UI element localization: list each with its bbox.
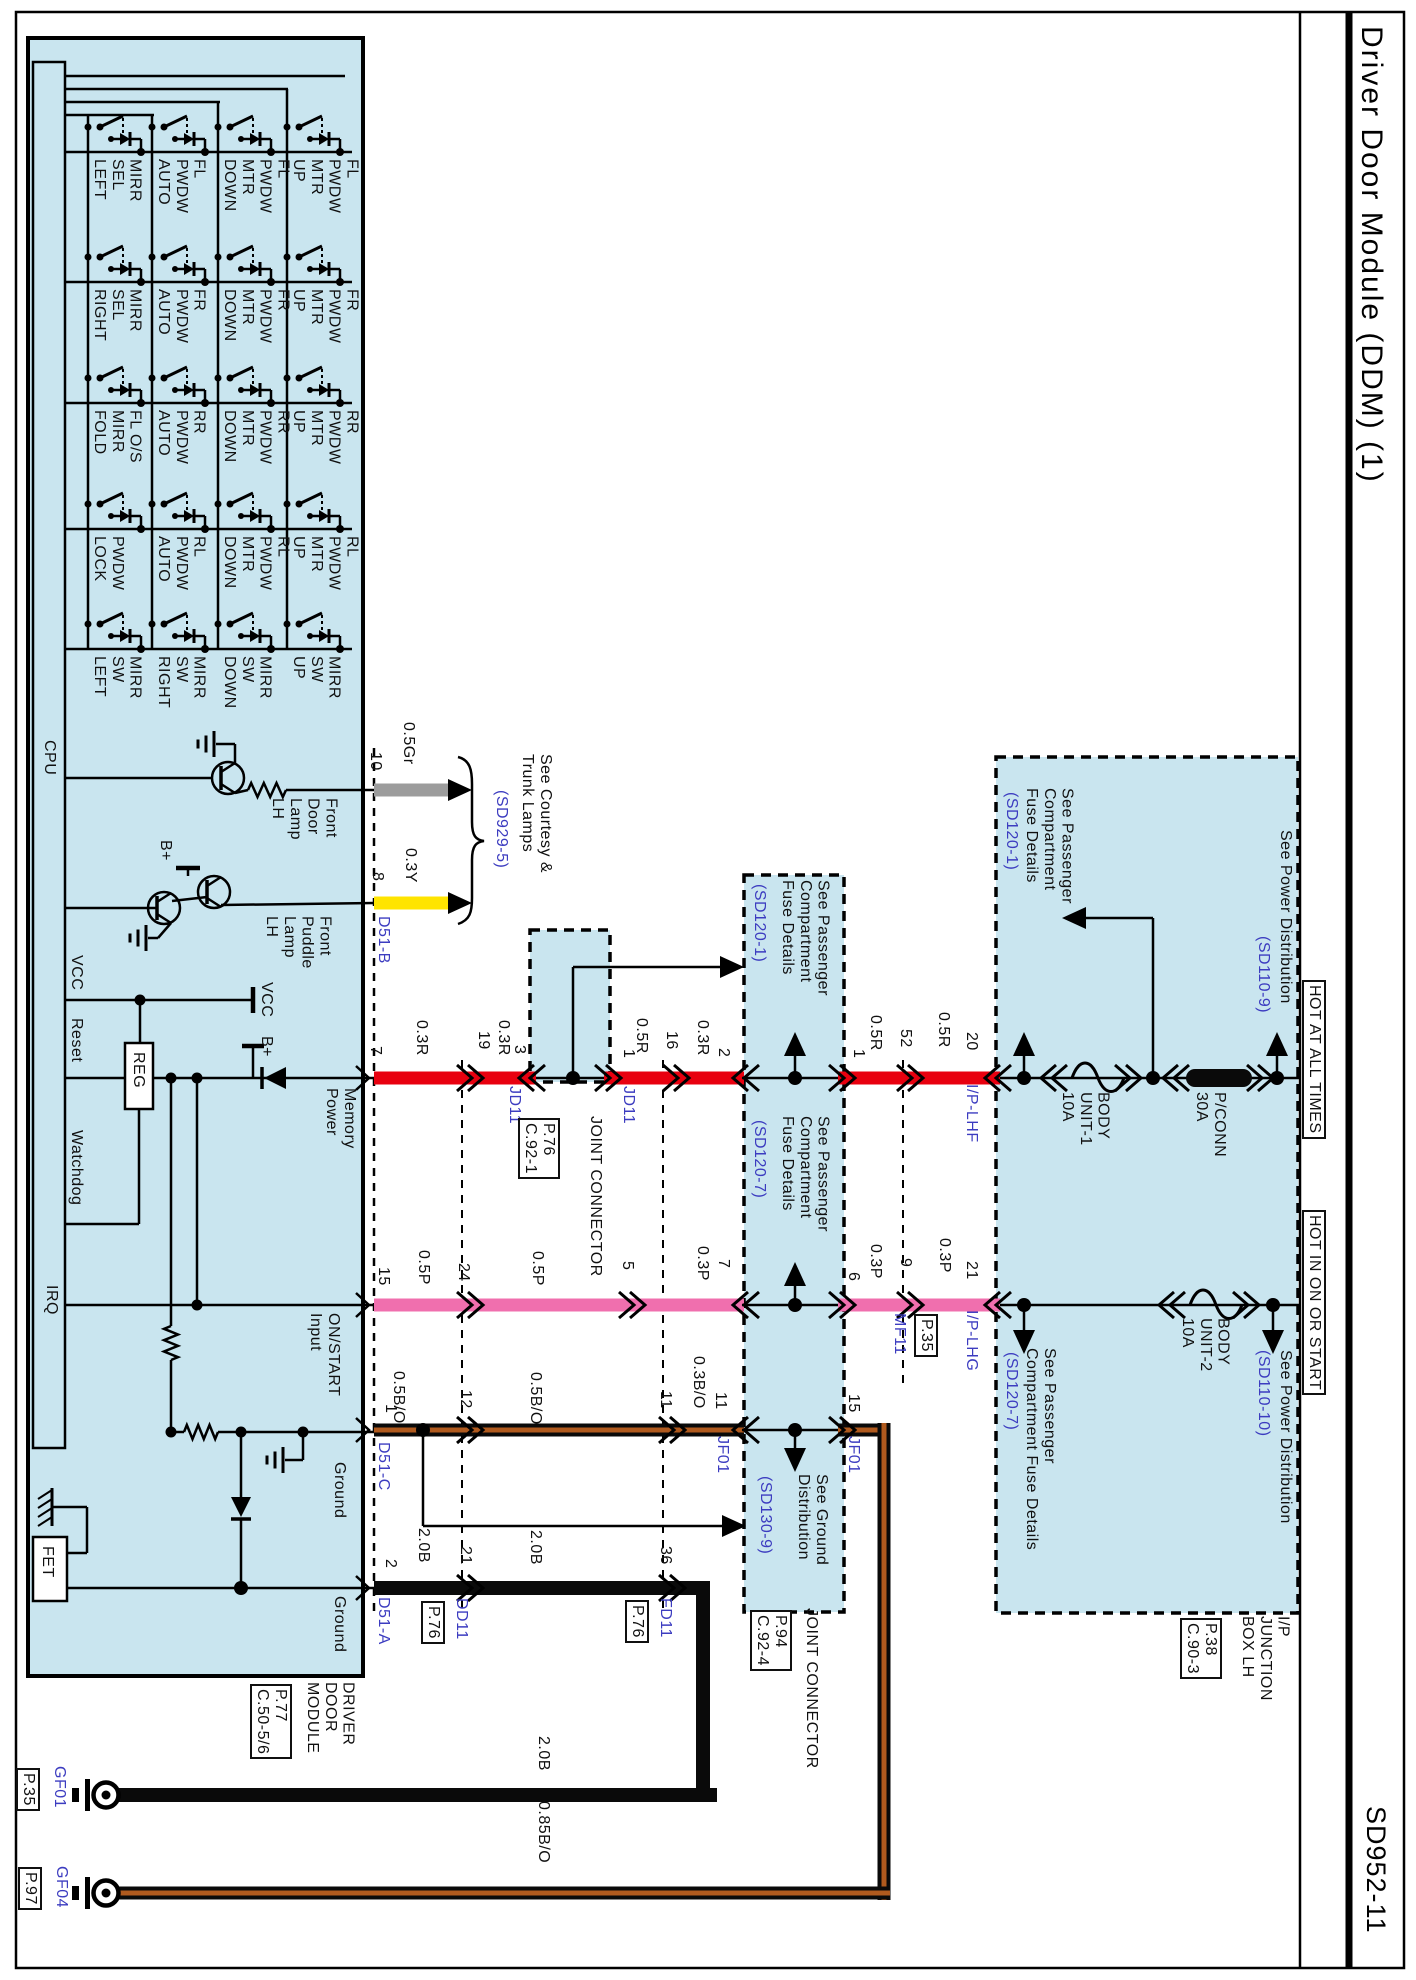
pin-19: 19 <box>474 1031 492 1050</box>
fuse-pconn: P/CONN 30A <box>1192 1092 1228 1157</box>
conn-jd11-right: JD11 <box>619 1086 637 1124</box>
conn-mf11: MF11 <box>890 1313 908 1355</box>
module-ref: P.77 C.50-5/6 <box>250 1684 292 1759</box>
vcc-symbol-label: VCC <box>257 982 275 1017</box>
ip-see-fuse-7: See Passenger Compartment Fuse Details <box>1022 1348 1058 1550</box>
jf01-see-fuse-7-ref: (SD120-7) <box>750 1120 768 1198</box>
jd11-joint-connector: JOINT CONNECTOR <box>586 1116 604 1277</box>
pin-7: 7 <box>366 1046 384 1055</box>
wire-0p3r-3: 0.3R <box>693 1020 711 1056</box>
pin-24: 24 <box>454 1263 472 1282</box>
switch-label-r5c3: MIRR SW DOWN <box>220 656 274 709</box>
gf04-ref: P.97 <box>18 1867 42 1910</box>
conn-d51-b: D51-B <box>374 916 392 964</box>
pin-memory-power: Memory Power <box>322 1088 358 1149</box>
pin-2-jf01: 2 <box>714 1048 732 1057</box>
jf01-see-fuse-1: See Passenger Compartment Fuse Details <box>778 880 832 996</box>
pin-21-dd11: 21 <box>456 1546 474 1565</box>
ip-see-fuse-1-ref: (SD120-1) <box>1002 792 1020 870</box>
fuse-body-unit-2: BODY UNIT-2 10A <box>1178 1318 1232 1372</box>
wire-0p5r-1: 0.5R <box>632 1018 650 1054</box>
switch-label-r4c1: PWDW LOCK <box>90 536 126 590</box>
jf01-see-fuse-7: See Passenger Compartment Fuse Details <box>778 1116 832 1232</box>
wire-0p3y: 0.3Y <box>401 848 419 883</box>
cpu-label: CPU <box>40 740 58 775</box>
switch-label-r2c3: FR PWDW MTR DOWN <box>220 289 292 343</box>
pin-15-jf01: 15 <box>844 1394 862 1413</box>
reg-label: REG <box>129 1052 147 1088</box>
pin-20: 20 <box>962 1032 980 1051</box>
mf11-ref: P.35 <box>914 1314 938 1357</box>
hot-at-all-times: HOT AT ALL TIMES <box>1302 980 1326 1139</box>
conn-ip-lhg: I/P-LHG <box>962 1310 980 1371</box>
schematic-page: CPUVCCResetWatchdogIRQREGFETVCCB+B+Front… <box>0 0 1416 1980</box>
wire-0p5bo-1: 0.5B/O <box>389 1371 407 1424</box>
switch-label-r2c1: MIRR SEL RIGHT <box>90 289 144 341</box>
dd11-ref: P.76 <box>421 1601 445 1644</box>
sig-vcc: VCC <box>67 955 85 990</box>
switch-label-r4c3: RL PWDW MTR DOWN <box>220 536 292 590</box>
switch-label-r1c4: FL PWDW MTR UP <box>289 159 361 213</box>
pin-5: 5 <box>618 1261 636 1270</box>
wire-0p3p-2: 0.3P <box>866 1244 884 1279</box>
sig-watchdog: Watchdog <box>67 1130 85 1205</box>
gf01-ref: P.35 <box>16 1768 40 1811</box>
fuse-body-unit-1: BODY UNIT-1 10A <box>1058 1092 1112 1146</box>
wire-0p5gr: 0.5Gr <box>399 722 417 765</box>
page-code: SD952-11 <box>1360 1806 1391 1934</box>
switch-label-r4c4: RL PWDW MTR UP <box>289 536 361 590</box>
jd11-ref: P.76 C.92-1 <box>518 1118 560 1179</box>
conn-jf01-right: JF01 <box>844 1436 862 1474</box>
switch-label-r1c2: FL PWDW AUTO <box>154 159 208 213</box>
wire-0p5p-2: 0.5P <box>528 1251 546 1286</box>
hot-in-on-or-start: HOT IN ON OR START <box>1302 1210 1326 1395</box>
pin-10: 10 <box>366 752 384 771</box>
front-door-lamp-label: Front Door Lamp LH <box>268 798 340 840</box>
front-puddle-lamp-label: Front Puddle Lamp LH <box>262 916 334 969</box>
ip-junction-ref: P.38 C.90-3 <box>1180 1618 1222 1679</box>
wire-0p5p-1: 0.5P <box>414 1250 432 1285</box>
pin-1-d51c: 1 <box>381 1404 399 1413</box>
ip-junction-box: I/P JUNCTION BOX LH <box>1238 1616 1292 1701</box>
wire-0p5r-3: 0.5R <box>866 1015 884 1051</box>
conn-d51-a: D51-A <box>374 1597 392 1645</box>
wire-2p0b-3: 2.0B <box>534 1736 552 1771</box>
fet-label: FET <box>38 1546 56 1578</box>
wire-0p3p-3: 0.3P <box>935 1238 953 1273</box>
pin-16: 16 <box>662 1031 680 1050</box>
pin-12: 12 <box>456 1390 474 1409</box>
pin-11-jf01: 11 <box>711 1392 729 1410</box>
ip-see-power-10-ref: (SD110-10) <box>1254 1350 1272 1437</box>
jf01-joint-connector: JOINT CONNECTOR <box>802 1608 820 1769</box>
conn-d51-c: D51-C <box>374 1442 392 1491</box>
wire-2p0b-2: 2.0B <box>526 1530 544 1565</box>
pin-2-d51a: 2 <box>381 1559 399 1568</box>
wire-2p0b-1: 2.0B <box>414 1528 432 1563</box>
switch-label-r4c2: RL PWDW AUTO <box>154 536 208 590</box>
pin-ground-2: Ground <box>330 1596 348 1652</box>
ip-see-power-10: See Power Distribution <box>1276 1350 1294 1524</box>
switch-label-r2c2: FR PWDW AUTO <box>154 289 208 343</box>
switch-label-r5c2: MIRR SW RIGHT <box>154 656 208 708</box>
ip-see-power-9: See Power Distribution <box>1276 830 1294 1004</box>
wire-0p3bo: 0.3B/O <box>689 1356 707 1409</box>
bplus-label-2: B+ <box>257 1036 275 1057</box>
wire-0p5r-2: 0.5R <box>934 1012 952 1048</box>
pin-1-jf01: 1 <box>849 1049 867 1058</box>
pin-6: 6 <box>844 1272 862 1281</box>
wire-0p85bo: 0.85B/O <box>534 1801 552 1863</box>
pin-onstart-input: ON/START Input <box>306 1313 342 1396</box>
ref-sd929-5: (SD929-5) <box>492 790 510 868</box>
switch-label-r1c3: FL PWDW MTR DOWN <box>220 159 292 213</box>
jf01-see-fuse-1-ref: (SD120-1) <box>750 884 768 962</box>
conn-ip-lhf: I/P-LHF <box>962 1084 980 1143</box>
wire-0p3r-1: 0.3R <box>412 1020 430 1056</box>
ip-see-fuse-1: See Passenger Compartment Fuse Details <box>1022 788 1076 904</box>
wiring-diagram-canvas <box>0 0 1416 1980</box>
fd11-ref: P.76 <box>625 1600 649 1643</box>
ground-gf04: GF04 <box>52 1866 70 1908</box>
jf01-ref: P.94 C.92-4 <box>750 1610 792 1671</box>
switch-label-r2c4: FR PWDW MTR UP <box>289 289 361 343</box>
wire-0p3p-1: 0.3P <box>693 1246 711 1281</box>
switch-label-r5c1: MIRR SW LEFT <box>90 656 144 699</box>
conn-dd11: DD11 <box>452 1598 470 1640</box>
switch-label-r3c2: RR PWDW AUTO <box>154 410 208 464</box>
switch-label-r1c1: MIRR SEL LEFT <box>90 159 144 202</box>
conn-fd11: FD11 <box>656 1598 674 1638</box>
jf01-see-ground-ref: (SD130-9) <box>756 1476 774 1554</box>
pin-ground-1: Ground <box>330 1462 348 1518</box>
sig-reset: Reset <box>67 1018 85 1062</box>
pin-9: 9 <box>896 1258 914 1267</box>
pin-8: 8 <box>368 872 386 881</box>
pin-7-jf01: 7 <box>714 1259 732 1268</box>
switch-label-r5c4: MIRR SW UP <box>289 656 343 699</box>
pin-36: 36 <box>656 1546 674 1565</box>
switch-label-r3c3: RR PWDW MTR DOWN <box>220 410 292 464</box>
pin-3: 3 <box>510 1045 528 1054</box>
jf01-see-ground: See Ground Distribution <box>794 1474 830 1565</box>
pin-52: 52 <box>896 1029 914 1048</box>
pin-21-ip: 21 <box>962 1261 980 1280</box>
switch-label-r3c4: RR PWDW MTR UP <box>289 410 361 464</box>
see-courtesy-trunk: See Courtesy & Trunk Lamps <box>518 754 554 873</box>
page-title: Driver Door Module (DDM) (1) <box>1354 26 1388 484</box>
conn-jf01-left: JF01 <box>713 1436 731 1474</box>
pin-15: 15 <box>374 1267 392 1286</box>
ground-gf01: GF01 <box>50 1766 68 1808</box>
switch-label-r3c1: FL O/S MIRR FOLD <box>90 410 144 463</box>
bplus-label-1: B+ <box>156 840 174 861</box>
ip-see-power-9-ref: (SD110-9) <box>1254 936 1272 1013</box>
wire-0p5bo-2: 0.5B/O <box>526 1372 544 1425</box>
pin-11-fd11: 11 <box>656 1391 674 1409</box>
ip-see-fuse-7-ref: (SD120-7) <box>1002 1352 1020 1430</box>
module-name: DRIVER DOOR MODULE <box>303 1682 357 1753</box>
sig-irq: IRQ <box>42 1285 60 1315</box>
